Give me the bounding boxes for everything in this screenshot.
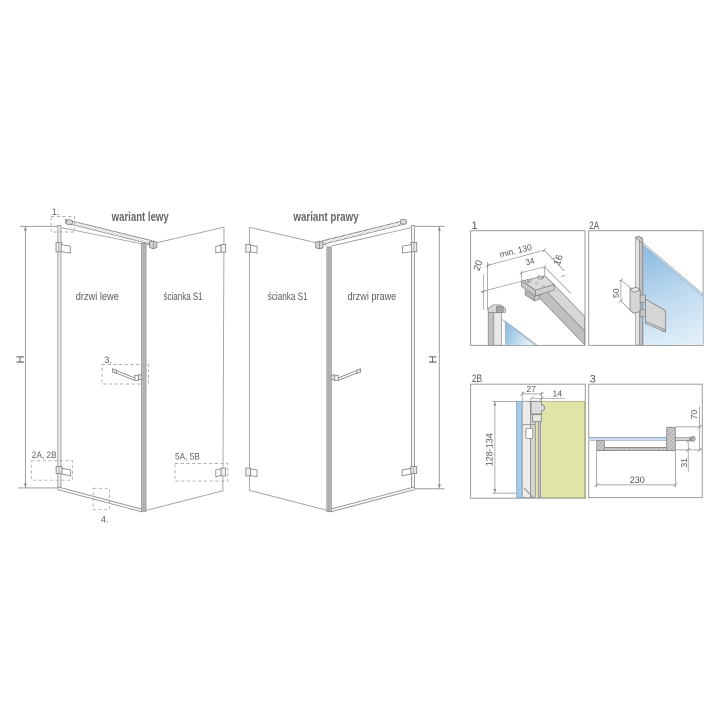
svg-text:wariant lewy: wariant lewy: [111, 209, 169, 224]
svg-text:70: 70: [689, 410, 699, 420]
svg-text:31: 31: [679, 458, 689, 468]
svg-text:H: H: [15, 355, 27, 363]
svg-text:ścianka S1: ścianka S1: [163, 291, 202, 303]
svg-text:5A, 5B: 5A, 5B: [175, 451, 200, 461]
svg-text:27: 27: [526, 384, 536, 394]
svg-text:230: 230: [630, 475, 645, 485]
svg-text:3: 3: [590, 374, 596, 386]
svg-text:drzwi lewe: drzwi lewe: [76, 291, 119, 303]
svg-text:2B: 2B: [472, 373, 482, 385]
svg-text:wariant prawy: wariant prawy: [293, 209, 360, 224]
svg-text:2A: 2A: [589, 220, 599, 232]
svg-text:drzwi prawe: drzwi prawe: [348, 291, 397, 303]
svg-text:1: 1: [472, 220, 478, 232]
svg-text:4.: 4.: [101, 515, 109, 525]
svg-text:128-134: 128-134: [484, 433, 494, 466]
svg-text:H: H: [428, 355, 440, 363]
svg-text:14: 14: [553, 389, 563, 399]
svg-text:50: 50: [611, 288, 621, 298]
svg-text:ścianka S1: ścianka S1: [268, 291, 308, 303]
svg-text:1.: 1.: [52, 207, 60, 217]
svg-text:2A, 2B: 2A, 2B: [32, 450, 57, 460]
svg-text:3.: 3.: [104, 355, 112, 365]
